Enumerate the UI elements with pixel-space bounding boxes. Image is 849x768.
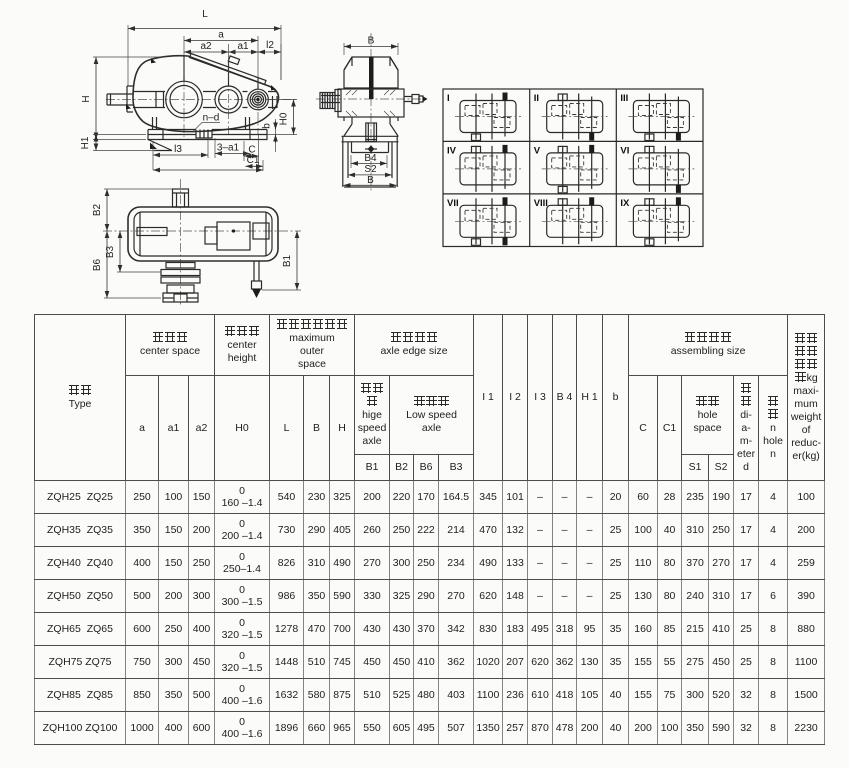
svg-text:S2: S2 bbox=[364, 164, 377, 175]
svg-text:B3: B3 bbox=[105, 245, 116, 258]
svg-text:n–d: n–d bbox=[203, 113, 220, 124]
svg-text:VIII: VIII bbox=[534, 198, 548, 209]
svg-text:III: III bbox=[620, 93, 628, 104]
svg-text:C: C bbox=[248, 145, 255, 156]
svg-text:VII: VII bbox=[447, 198, 459, 209]
svg-text:3–a1: 3–a1 bbox=[217, 143, 240, 154]
svg-text:a: a bbox=[218, 30, 224, 41]
svg-text:l3: l3 bbox=[174, 144, 182, 155]
svg-text:IV: IV bbox=[447, 145, 457, 156]
svg-text:B2: B2 bbox=[92, 203, 103, 216]
svg-text:B6: B6 bbox=[92, 258, 103, 271]
svg-text:a1: a1 bbox=[237, 41, 249, 52]
svg-text:B: B bbox=[368, 36, 375, 47]
svg-text:H1: H1 bbox=[80, 136, 91, 149]
svg-text:II: II bbox=[534, 93, 539, 104]
svg-text:V: V bbox=[534, 145, 541, 156]
svg-text:H0: H0 bbox=[279, 112, 290, 125]
svg-text:a2: a2 bbox=[200, 41, 212, 52]
svg-text:IX: IX bbox=[620, 198, 630, 209]
svg-text:C1: C1 bbox=[247, 155, 260, 166]
svg-text:l2: l2 bbox=[266, 40, 274, 51]
svg-text:I: I bbox=[447, 93, 450, 104]
svg-text:VI: VI bbox=[620, 145, 629, 156]
svg-text:B1: B1 bbox=[282, 254, 293, 267]
svg-text:b: b bbox=[262, 123, 273, 129]
svg-text:B4: B4 bbox=[364, 153, 377, 164]
svg-text:L: L bbox=[202, 9, 208, 20]
svg-text:H: H bbox=[81, 95, 92, 102]
svg-text:B: B bbox=[367, 175, 374, 186]
